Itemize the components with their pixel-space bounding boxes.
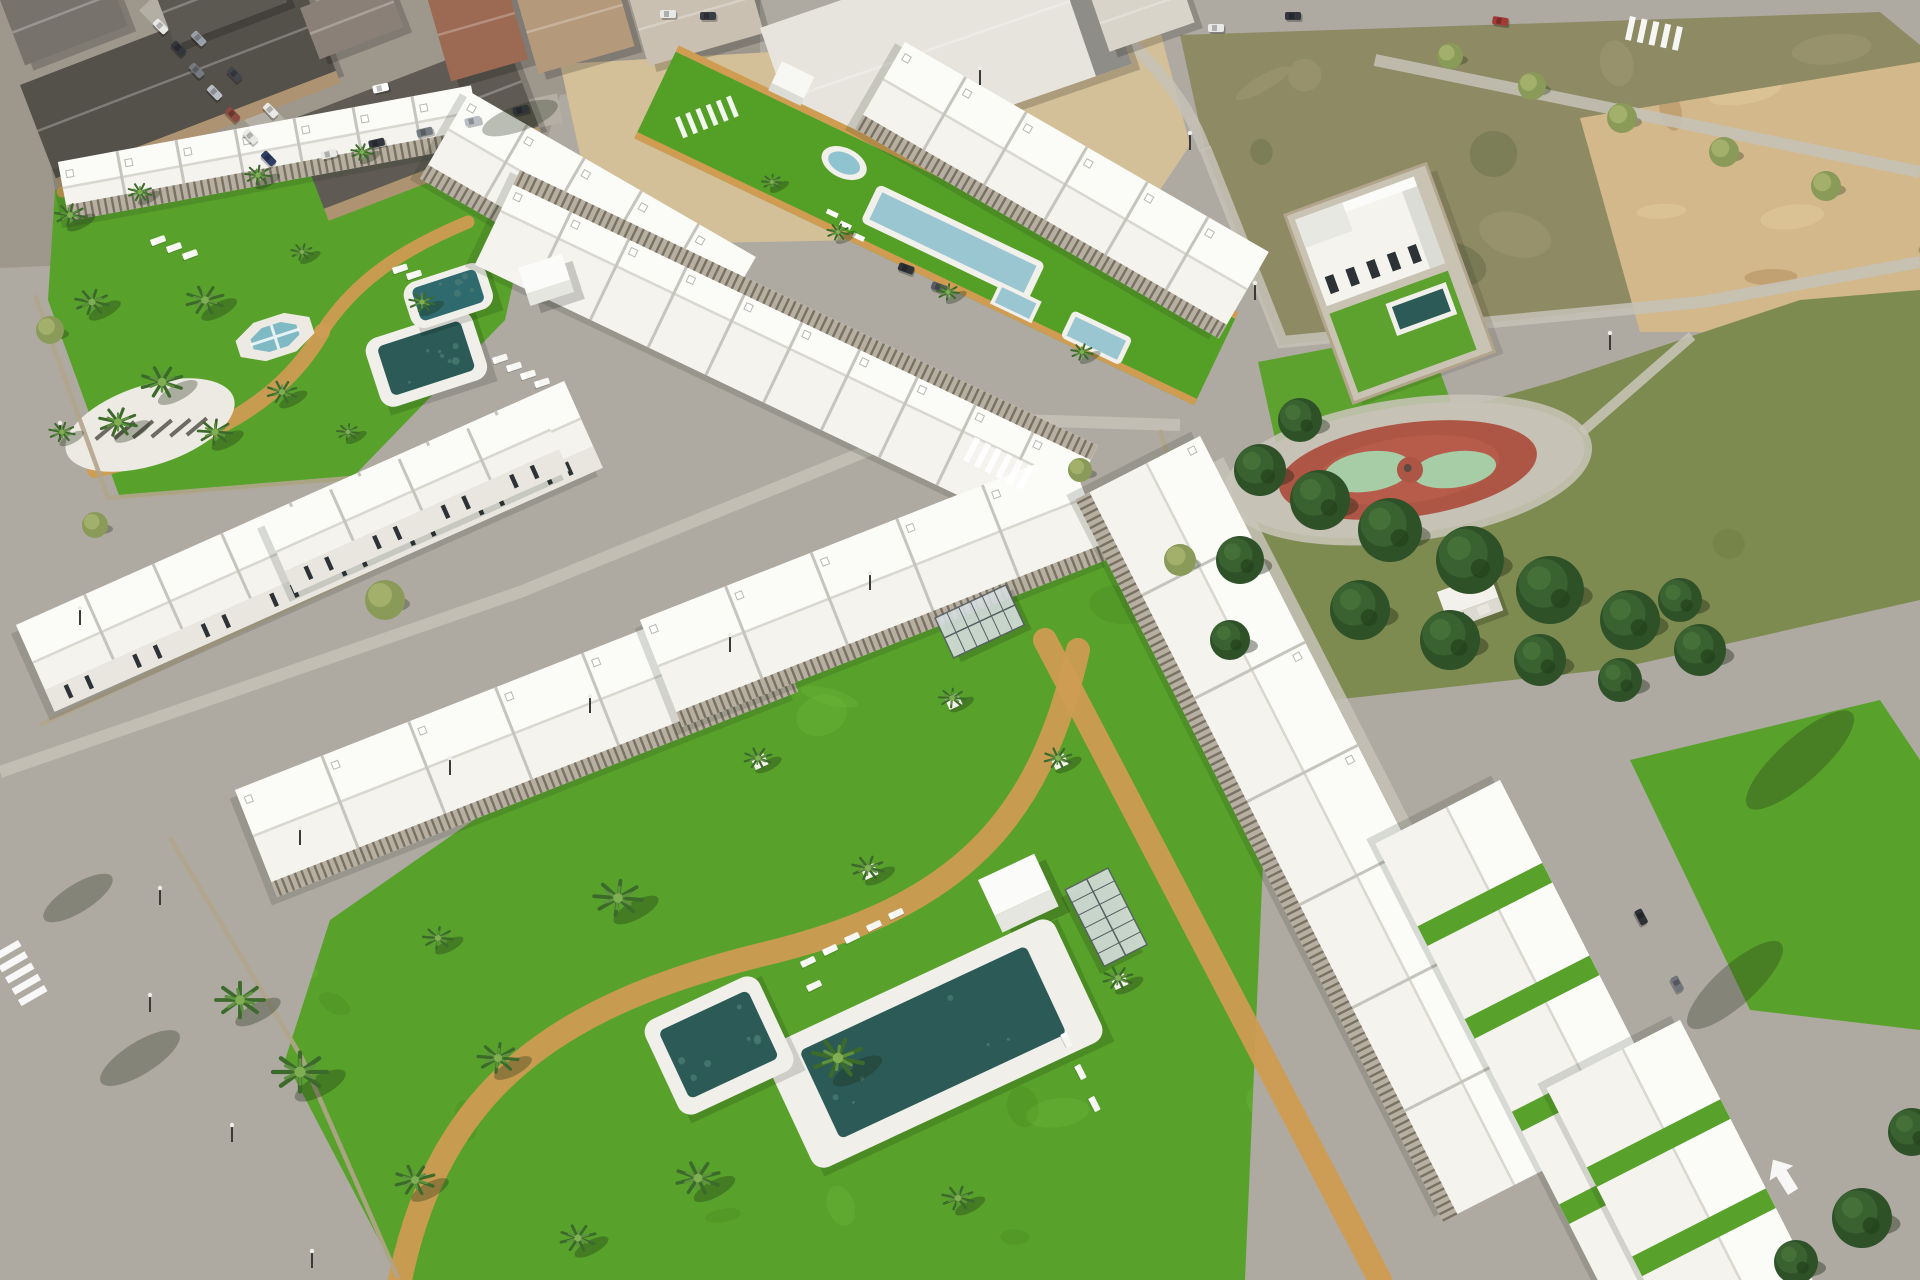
chimney — [361, 115, 369, 123]
chimney — [66, 169, 74, 177]
car — [1208, 24, 1226, 34]
car-windshield — [1289, 13, 1294, 19]
car-windshield — [1212, 25, 1217, 31]
car-windshield — [704, 13, 709, 19]
car — [660, 10, 678, 20]
car — [1285, 12, 1303, 22]
chimney — [420, 104, 428, 112]
chimney — [184, 148, 192, 156]
car — [700, 12, 718, 22]
car-windshield — [664, 11, 669, 17]
chimney — [302, 126, 310, 134]
aerial-development-render — [0, 0, 1920, 1280]
chimney — [125, 159, 133, 167]
aerial-render-stage — [0, 0, 1920, 1280]
car-windshield — [1496, 18, 1502, 25]
